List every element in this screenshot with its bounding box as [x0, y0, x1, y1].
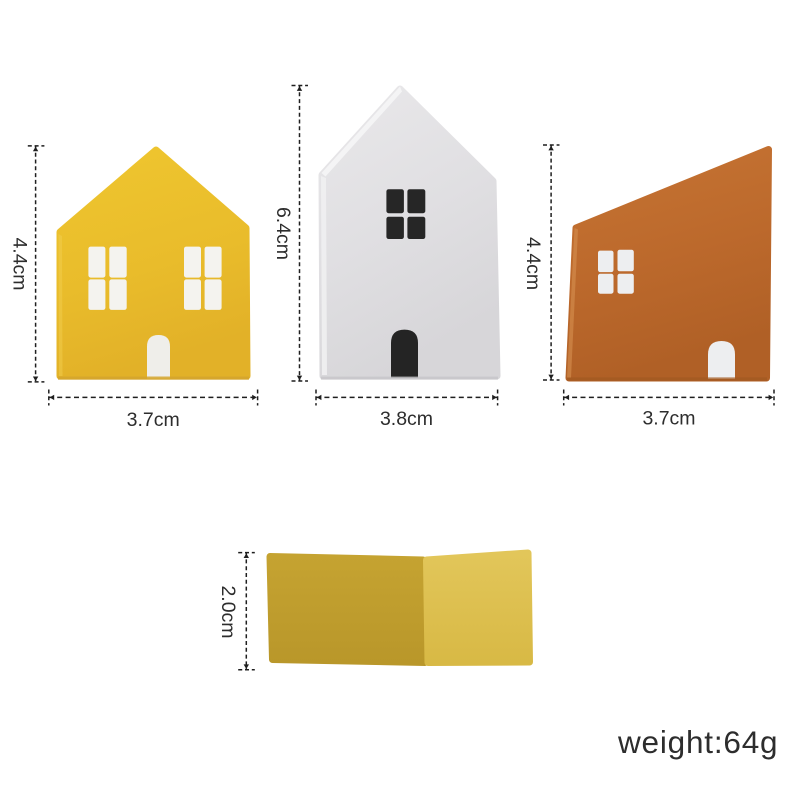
svg-text:2.0cm: 2.0cm — [217, 585, 239, 638]
svg-text:6.4cm: 6.4cm — [272, 207, 294, 260]
svg-text:weight:64g: weight:64g — [617, 724, 778, 760]
svg-text:3.8cm: 3.8cm — [380, 408, 433, 430]
svg-text:3.7cm: 3.7cm — [642, 408, 695, 430]
svg-text:4.4cm: 4.4cm — [9, 237, 31, 290]
svg-text:3.7cm: 3.7cm — [127, 409, 180, 431]
svg-text:4.4cm: 4.4cm — [522, 237, 544, 290]
